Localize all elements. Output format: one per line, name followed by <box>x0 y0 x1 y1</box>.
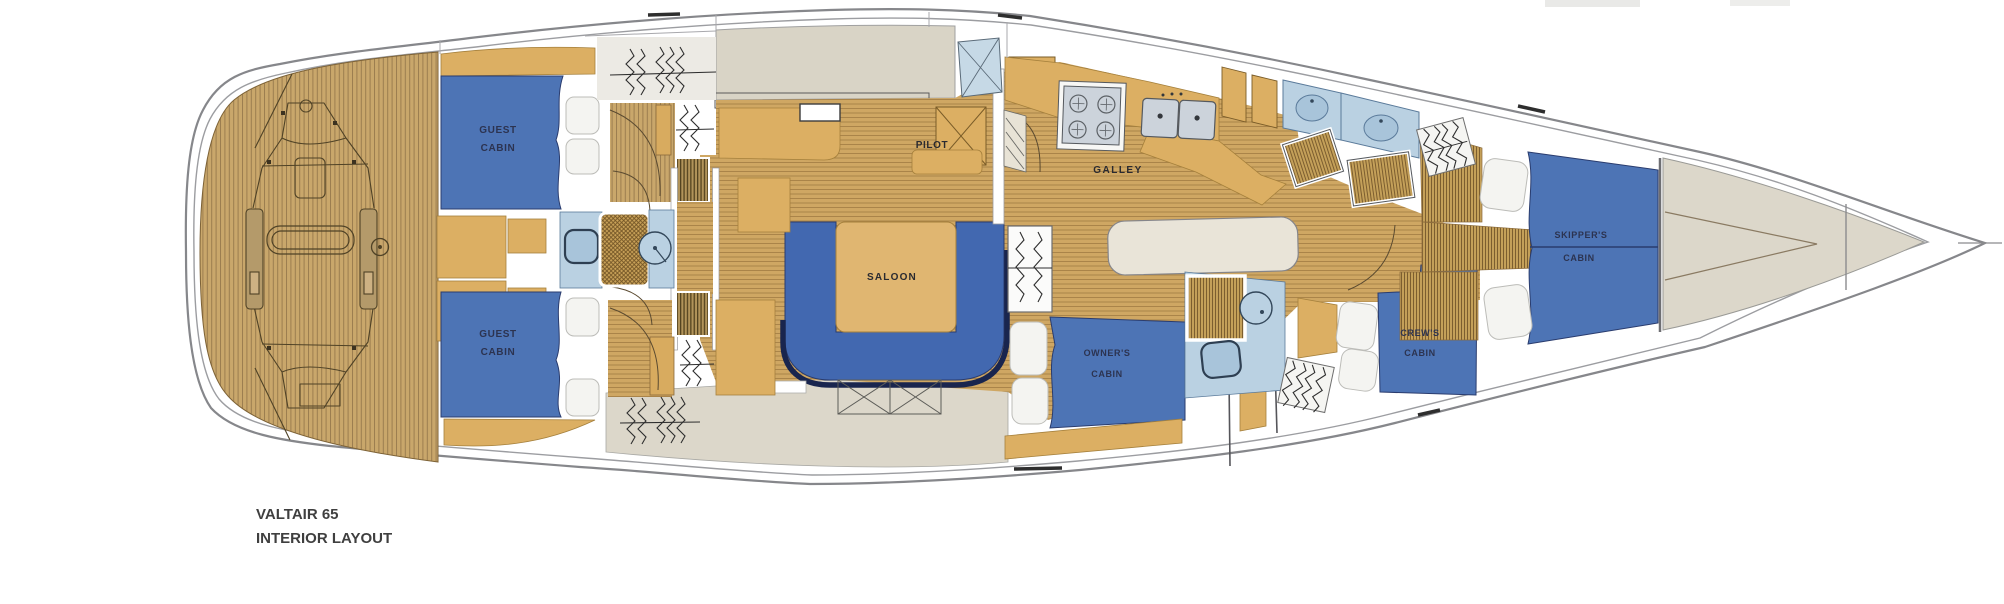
svg-text:VALTAIR 65: VALTAIR 65 <box>256 506 339 523</box>
svg-text:GALLEY: GALLEY <box>1093 165 1143 176</box>
svg-text:CABIN: CABIN <box>481 347 516 358</box>
svg-text:PILOT: PILOT <box>916 140 948 151</box>
svg-text:CABIN: CABIN <box>1404 348 1436 358</box>
svg-text:CABIN: CABIN <box>1563 253 1595 263</box>
svg-text:CABIN: CABIN <box>1091 369 1123 379</box>
svg-text:OWNER'S: OWNER'S <box>1084 348 1131 358</box>
svg-text:GUEST: GUEST <box>479 125 516 136</box>
svg-text:CREW'S: CREW'S <box>1400 328 1439 338</box>
svg-text:CABIN: CABIN <box>481 143 516 154</box>
svg-text:GUEST: GUEST <box>479 329 516 340</box>
svg-text:SKIPPER'S: SKIPPER'S <box>1554 230 1607 240</box>
svg-text:INTERIOR LAYOUT: INTERIOR LAYOUT <box>256 530 392 547</box>
svg-text:SALOON: SALOON <box>867 272 917 283</box>
